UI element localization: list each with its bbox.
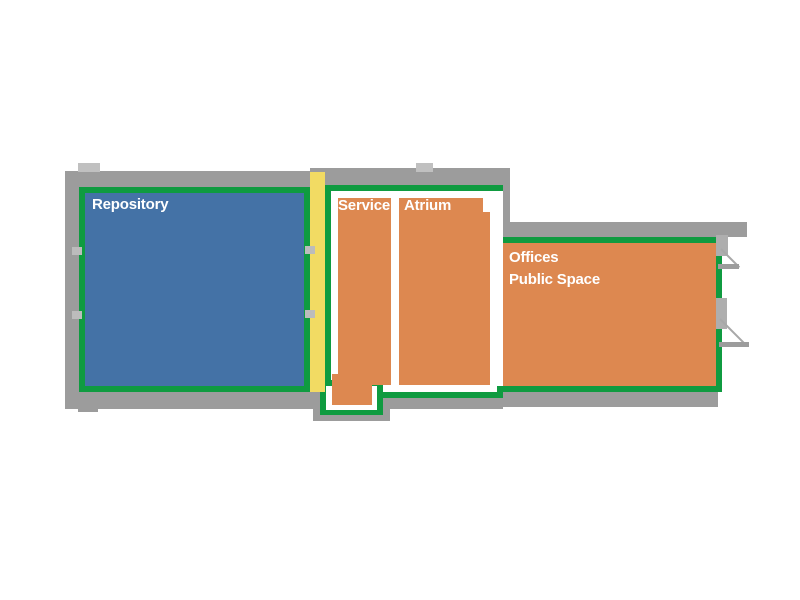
wall-joint-tick-left-lower [72, 311, 82, 319]
atrium-label: Atrium [404, 198, 451, 213]
service-top-wall [310, 168, 510, 186]
door-1-sill [718, 264, 739, 269]
wall-stub-top-middle [416, 163, 433, 172]
wall-stub-top-left [78, 163, 100, 172]
wall-joint-tick-left-upper [72, 247, 82, 255]
atrium-offices-divider [492, 191, 503, 386]
repository-room [79, 187, 310, 392]
door-2-sill [719, 342, 749, 347]
wall-joint-tick-right-upper [305, 246, 315, 254]
offices-label: Offices [509, 250, 558, 265]
wall-foot-step [78, 406, 98, 412]
offices-top-wall [510, 222, 747, 237]
floor-plan: Repository Service Atrium Offices Public… [0, 0, 800, 600]
atrium-corner-notch [483, 191, 497, 212]
corridor-strip [310, 172, 325, 392]
service-atrium-divider [391, 191, 399, 385]
service-bump-floor [332, 374, 372, 405]
offices-bottom-wall [503, 392, 718, 407]
service-label: Service [338, 198, 390, 213]
repository-label: Repository [92, 197, 168, 212]
wall-joint-tick-right-lower [305, 310, 315, 318]
service-atrium-floor [338, 198, 490, 385]
public-space-label: Public Space [509, 272, 600, 287]
